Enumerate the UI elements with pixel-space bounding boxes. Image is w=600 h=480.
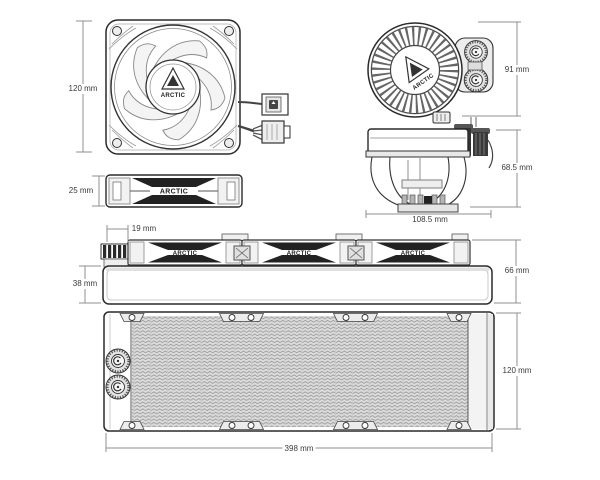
radiator-top-view [104, 312, 494, 431]
fan-daisy-chain-connector [348, 246, 364, 260]
pump-cold-plate [398, 195, 458, 212]
arctic-wordmark: ARCTIC [160, 189, 188, 196]
pump-side-view [366, 117, 493, 212]
radiator-side-body [103, 266, 492, 304]
pump-cable-plug [433, 112, 450, 123]
dim-fan-thickness: 25 mm [67, 186, 95, 196]
cooler-dimension-diagram: ARCTIC AR [0, 0, 600, 480]
pump-top-view: ARCTIC [368, 23, 493, 123]
arctic-wordmark: ARCTIC [287, 251, 312, 257]
dim-fan-height: 120 mm [67, 84, 100, 94]
dim-radiator-thickness: 38 mm [71, 279, 99, 289]
radiator-fins [132, 316, 468, 427]
dim-radiator-length: 398 mm [283, 444, 316, 454]
arctic-wordmark: ARCTIC [161, 93, 186, 99]
fan-front-view: ARCTIC [106, 20, 290, 154]
fan-side-view: ARCTIC [106, 175, 242, 207]
assembly-fan-1: ARCTIC [128, 240, 242, 265]
assembly-side-view: ARCTIC ARCTIC ARCTIC [101, 234, 492, 304]
arctic-wordmark: ARCTIC [173, 251, 198, 257]
dim-assembly-height: 66 mm [503, 266, 531, 276]
arctic-wordmark: ARCTIC [401, 251, 426, 257]
fan-daisy-chain-connector [234, 246, 250, 260]
fan-pwm-connector [253, 121, 290, 143]
fan-cable [238, 102, 262, 104]
assembly-fan-2: ARCTIC [242, 240, 356, 265]
radiator-hose-fittings-side [101, 244, 128, 267]
dim-radiator-width: 120 mm [501, 366, 534, 376]
dim-pump-side-width: 108.5 mm [410, 215, 450, 225]
fan-connector-socket [262, 94, 288, 115]
dim-pump-side-height: 68.5 mm [499, 163, 534, 173]
dim-fitting-overhang: 19 mm [130, 224, 158, 234]
dim-pump-height: 91 mm [503, 65, 531, 75]
assembly-fan-3: ARCTIC [356, 240, 470, 265]
